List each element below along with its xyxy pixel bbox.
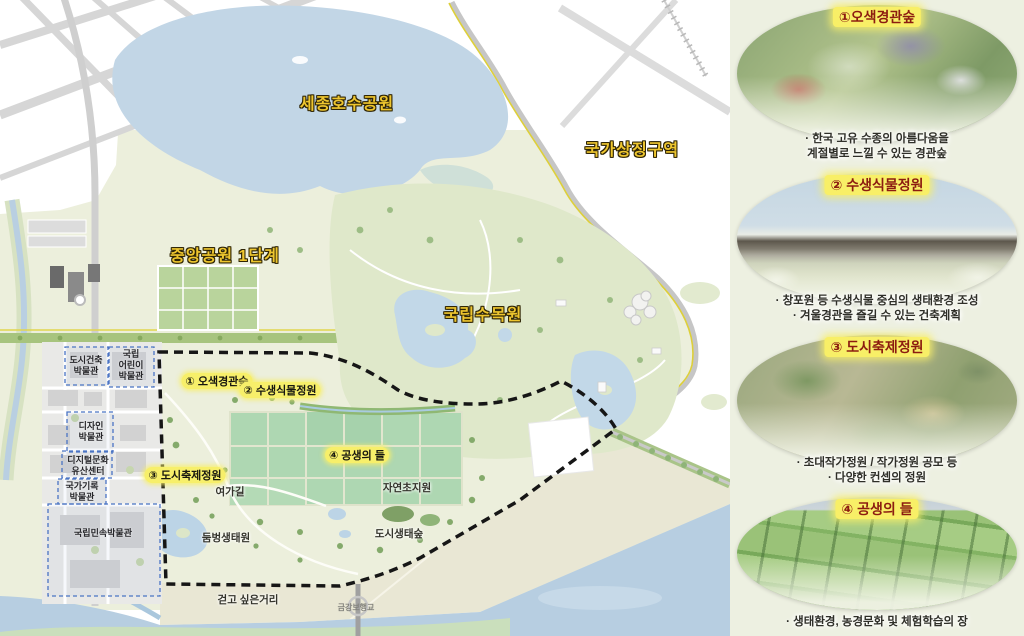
feature-description: · 한국 고유 수종의 아름다움을 계절별로 느낄 수 있는 경관숲 <box>730 132 1024 163</box>
arboretum-pond-3 <box>498 328 512 342</box>
lake-island <box>292 56 308 64</box>
eco-pond-1 <box>328 508 346 520</box>
feature-description: · 초대작가정원 / 작가정원 공모 등 · 다양한 컨셉의 정원 <box>730 456 1024 487</box>
feature-title: ①오색경관숲 <box>833 7 921 27</box>
river-shoal <box>538 586 662 610</box>
feature-description: · 생태환경, 농경문화 및 체험학습의 장 <box>730 615 1024 631</box>
feature-sidebar: ①오색경관숲 · 한국 고유 수종의 아름다움을 계절별로 느낄 수 있는 경관… <box>730 0 1024 636</box>
feature-card-osaek-forest: ①오색경관숲 · 한국 고유 수종의 아름다움을 계절별로 느낄 수 있는 경관… <box>730 0 1024 168</box>
feature-card-aquatic-garden: ② 수생식물정원 · 창포원 등 수생식물 중심의 생태환경 조성 · 겨울경관… <box>730 168 1024 330</box>
eco-forest-patch <box>382 506 414 522</box>
eco-pond-2 <box>339 530 351 538</box>
feature-title: ④ 공생의 들 <box>835 499 918 519</box>
map-graphics <box>0 0 730 636</box>
lake-island-2 <box>394 117 406 124</box>
feature-title: ③ 도시축제정원 <box>824 337 929 357</box>
symbiosis-fields <box>230 412 462 505</box>
park-map: 세종호수공원 국가상징구역 중앙공원 1단계 국립수목원 ① 오색경관숲 ② 수… <box>0 0 730 636</box>
feature-card-festival-garden: ③ 도시축제정원 · 초대작가정원 / 작가정원 공모 등 · 다양한 컨셉의 … <box>730 330 1024 492</box>
feature-description: · 창포원 등 수생식물 중심의 생태환경 조성 · 겨울경관을 즐길 수 있는… <box>730 294 1024 325</box>
feature-card-symbiosis-field: ④ 공생의 들 · 생태환경, 농경문화 및 체험학습의 장 <box>730 492 1024 636</box>
pond-island <box>425 324 445 336</box>
feature-title: ② 수생식물정원 <box>824 175 929 195</box>
eco-forest-patch-2 <box>420 514 440 526</box>
park-masterplan-page: 세종호수공원 국가상징구역 중앙공원 1단계 국립수목원 ① 오색경관숲 ② 수… <box>0 0 1024 636</box>
dumbeong-island <box>176 528 190 538</box>
